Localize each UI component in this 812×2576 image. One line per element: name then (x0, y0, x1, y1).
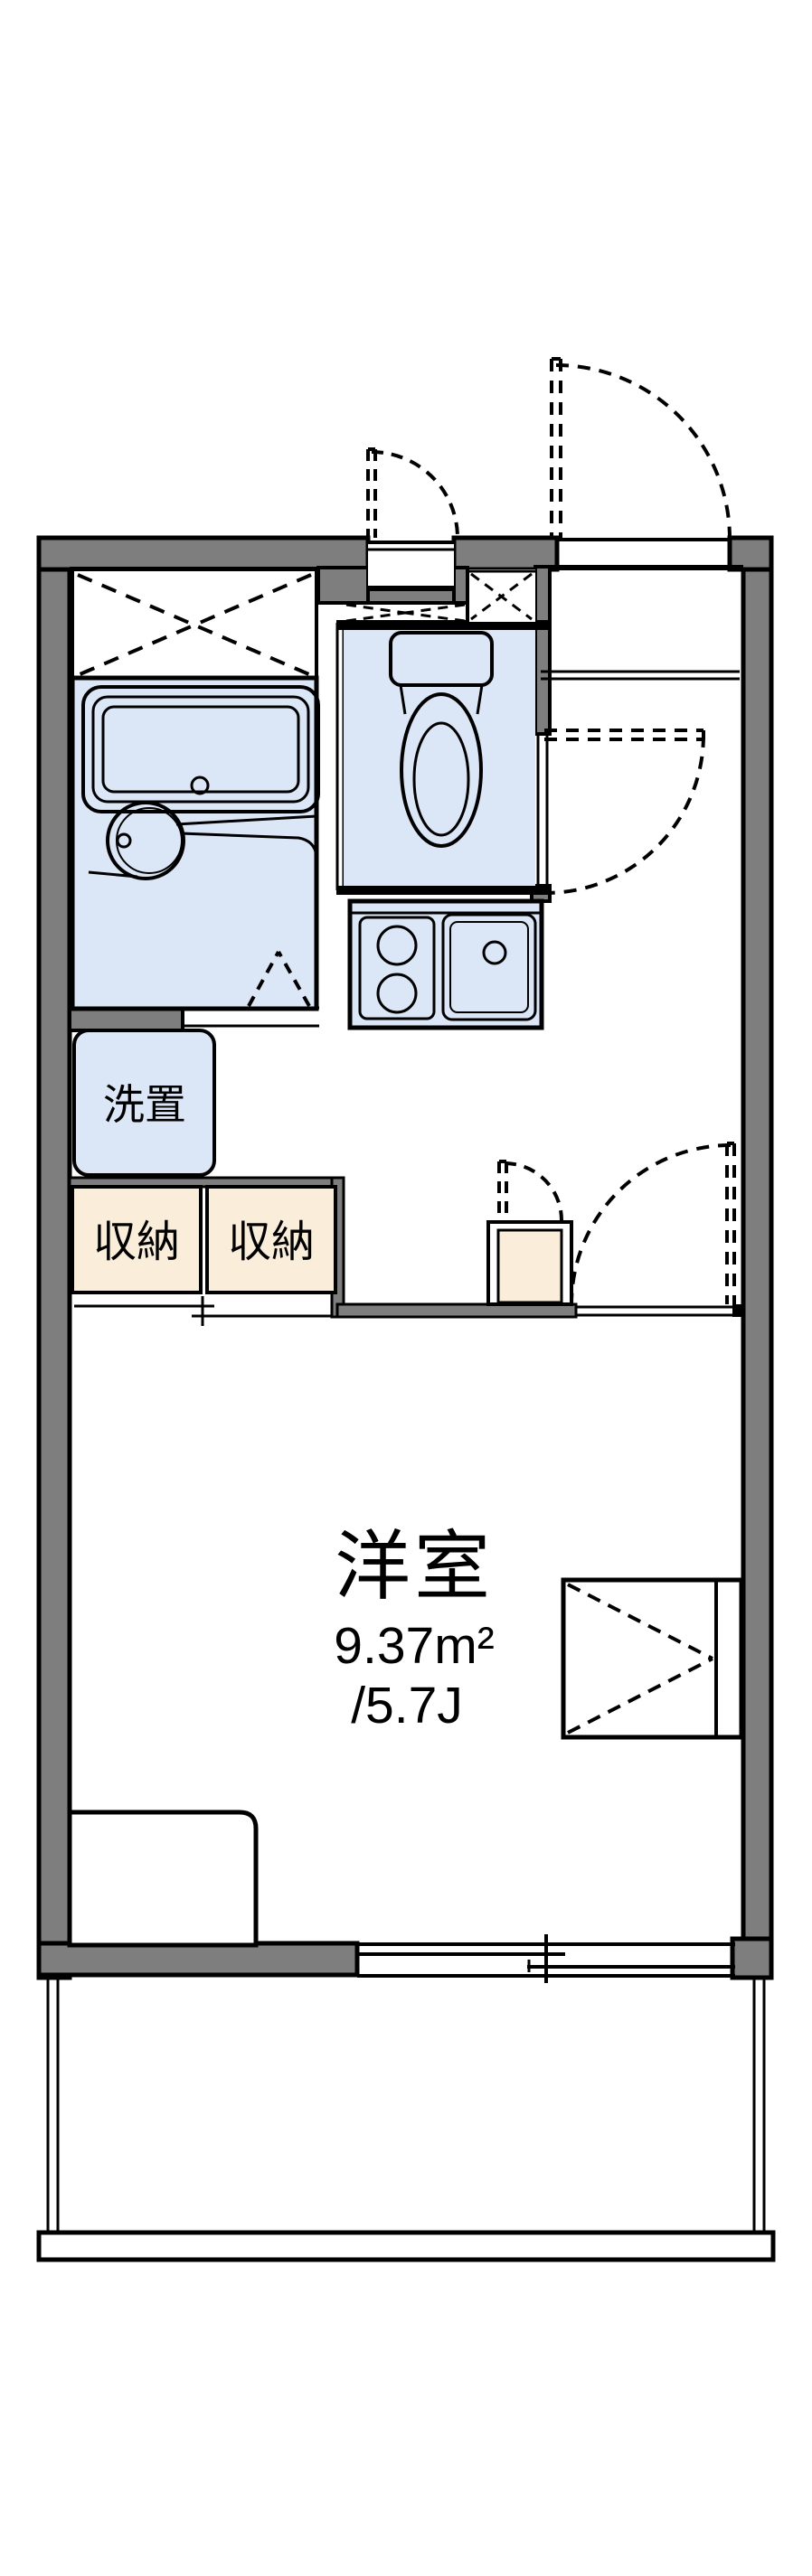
bathroom (72, 569, 318, 1009)
floor-plan-page: 洗置 収納 収納 洋室 9.37m² /5.7J (0, 0, 812, 2576)
window-box (563, 1580, 741, 1737)
wall-right (743, 538, 771, 1978)
balcony-front-rail (39, 2233, 773, 2260)
room-swing-arc (571, 1145, 731, 1304)
alcove-recess (368, 541, 454, 589)
wall-bottom-right-stub (732, 1939, 771, 1978)
wall-top-right (730, 538, 771, 569)
storage-left-label: 収納 (93, 1218, 180, 1266)
washer-space: 洗置 (74, 1030, 214, 1175)
sliding-window (357, 1934, 735, 1983)
entrance-door (552, 359, 730, 540)
entrance-door-swing (552, 359, 730, 539)
transom-bowtie (346, 605, 465, 621)
wall-toilet-bottom-line (336, 886, 550, 895)
floor-plan-drawing: 洗置 収納 収納 洋室 9.37m² /5.7J (0, 0, 812, 2576)
wall-room-top (337, 1304, 576, 1317)
bowtie-line-2 (346, 613, 405, 621)
column-swing-arc (505, 1163, 562, 1220)
alcove-sill-line (366, 586, 456, 591)
room-area-sqm-label: 9.37m² (334, 1617, 494, 1675)
column-door-swing (499, 1161, 562, 1220)
wall-top-middle (454, 538, 557, 569)
balcony (39, 1978, 773, 2260)
bed-platform (70, 1812, 256, 1945)
wall-left (39, 538, 70, 1978)
kitchen-counter (350, 901, 542, 1028)
room-door (571, 1143, 734, 1304)
wall-toilet-right (535, 567, 550, 734)
wall-alcove-left (318, 568, 368, 603)
toilet-door-swing (544, 730, 703, 893)
washer-label: 洗置 (103, 1081, 186, 1128)
storage-sliding-doors (74, 1296, 332, 1326)
balcony-rails (48, 1978, 764, 2233)
entrance-swing-arc (556, 365, 730, 539)
bowtie-line-3 (405, 605, 465, 613)
wall-top-left (39, 538, 368, 569)
room-area-tatami-label: /5.7J (351, 1677, 463, 1735)
toilet-swing-arc (545, 735, 703, 893)
room-name-label: 洋室 (335, 1524, 494, 1609)
wall-bottom-left (39, 1943, 357, 1975)
alcove-window (366, 449, 458, 591)
alcove-window-swing (368, 449, 458, 538)
column-inner (498, 1230, 562, 1302)
bowtie-line-4 (405, 613, 465, 621)
storage-right-label: 収納 (228, 1218, 315, 1266)
wall-entrance-inner-top-line (550, 565, 743, 570)
storage-closets: 収納 収納 (72, 1187, 335, 1326)
kitchen (350, 901, 542, 1028)
hall-column (488, 1161, 571, 1304)
wall-alcove-right (454, 568, 467, 603)
bath-upper-area (72, 569, 316, 681)
bowtie-line-1 (346, 605, 405, 613)
alcove-swing-arc (372, 452, 458, 538)
main-room: 洋室 9.37m² /5.7J (70, 1524, 741, 1945)
toilet-room (344, 630, 703, 893)
